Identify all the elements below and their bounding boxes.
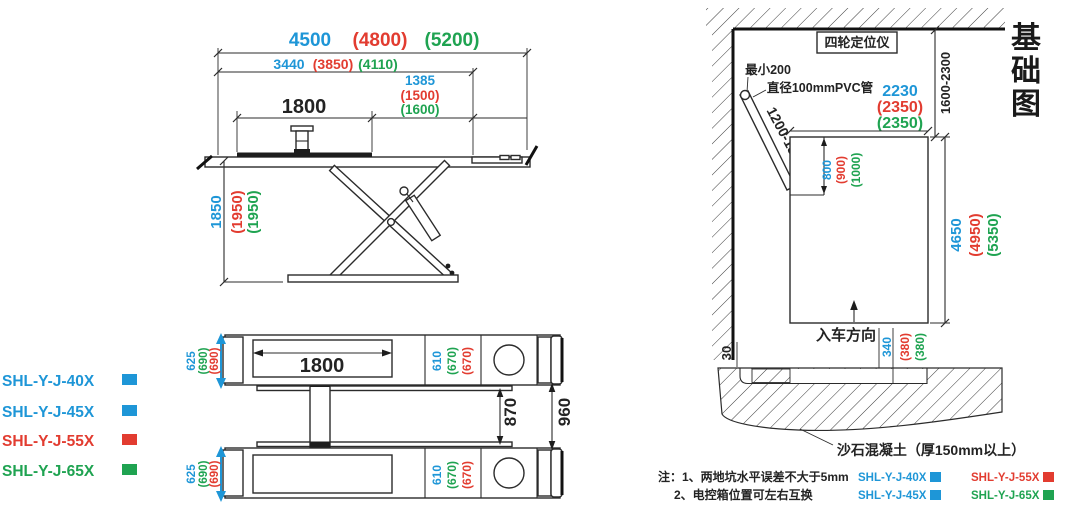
- dim-pit-depth-65x: (380): [913, 333, 927, 361]
- legend2-swatch-55x: [1043, 472, 1054, 482]
- legend-swatch-65x: [122, 464, 137, 475]
- legend-model-45x: SHL-Y-J-45X: [2, 404, 95, 421]
- dim-lift-height-65x: (1950): [245, 190, 262, 233]
- legend2-swatch-45x: [930, 490, 941, 500]
- dim-pit-width-65x: (2350): [877, 115, 923, 132]
- dim-edge-gap: 30: [719, 346, 734, 360]
- dim-wall-to-pit: 1600-2300: [938, 52, 953, 114]
- legend-swatch-40x: [122, 374, 137, 385]
- foundation-view: 四轮定位仪 最小200 1200-1800 直径100mmPVC管 2230 (…: [658, 8, 1054, 502]
- dim-pit-width-40x: 2230: [882, 83, 918, 100]
- pipe-label: 直径100mmPVC管: [767, 80, 873, 95]
- dim-pit-depth-55x: (380): [898, 333, 912, 361]
- dim-frame-length-65x: (4110): [358, 56, 398, 72]
- dim-rear-length-55x: (1500): [400, 88, 439, 103]
- legend2-model-45x: SHL-Y-J-45X: [858, 490, 927, 502]
- legend2-swatch-40x: [930, 472, 941, 482]
- model-legend-left: SHL-Y-J-40X SHL-Y-J-45X SHL-Y-J-55X SHL-…: [2, 373, 137, 480]
- dim-total-length-55x: (4800): [353, 30, 408, 51]
- entry-direction-label: 入车方向: [816, 326, 876, 344]
- dim-tread-width-55x-bottom: (670): [460, 461, 474, 489]
- dim-lift-height-55x: (1950): [229, 190, 246, 233]
- dim-total-length-65x: (5200): [425, 30, 480, 51]
- min-clearance-label: 最小200: [745, 62, 791, 77]
- note-1: 注：1、两地坑水平误差不大于5mm: [658, 469, 849, 484]
- dim-lift-height-40x: 1850: [208, 195, 225, 228]
- legend2-model-55x: SHL-Y-J-55X: [971, 472, 1040, 484]
- lift-foundation-drawing: 4500 (4800) (5200) 3440 (3850) (4110) 13…: [0, 0, 1065, 519]
- concrete-label: 沙石混凝土（厚150mm以上）: [837, 442, 1025, 458]
- dim-platform-width-55x-top: (690): [209, 347, 221, 374]
- dim-gap-outer: 960: [555, 398, 574, 426]
- model-legend-right: SHL-Y-J-40X SHL-Y-J-55X SHL-Y-J-45X SHL-…: [858, 472, 1054, 502]
- drawing-title: 基础图: [1008, 22, 1044, 121]
- dim-total-length-40x: 4500: [289, 30, 331, 51]
- dim-gap-inner: 870: [501, 398, 520, 426]
- dim-tread-width-40x-bottom: 610: [430, 465, 444, 485]
- dim-pit-length-65x: (5350): [985, 213, 1002, 256]
- dim-tread-width-65x-bottom: (670): [445, 461, 459, 489]
- plan-view: 1800 625 (690) (690) 625 (690) (690): [186, 333, 574, 502]
- legend2-model-65x: SHL-Y-J-65X: [971, 490, 1040, 502]
- side-view: 4500 (4800) (5200) 3440 (3850) (4110) 13…: [197, 30, 537, 286]
- dim-pit-length-55x: (4950): [967, 213, 984, 256]
- dim-pit-depth-40x: 340: [880, 337, 894, 357]
- technical-drawing-canvas: 4500 (4800) (5200) 3440 (3850) (4110) 13…: [0, 0, 1065, 519]
- dim-recess-40x: 800: [820, 160, 834, 180]
- dim-platform-width-40x-top: 625: [186, 351, 198, 371]
- legend-swatch-55x: [122, 434, 137, 445]
- aligner-label: 四轮定位仪: [824, 35, 890, 50]
- dim-pit-length-40x: 4650: [948, 218, 965, 251]
- dim-rear-length-40x: 1385: [405, 73, 436, 88]
- legend-model-65x: SHL-Y-J-65X: [2, 463, 95, 480]
- legend2-swatch-65x: [1043, 490, 1054, 500]
- dim-pit-width-55x: (2350): [877, 99, 923, 116]
- ground-cross-section: [718, 368, 1002, 430]
- dim-recess-55x: (900): [834, 156, 848, 184]
- dim-frame-length-40x: 3440: [273, 56, 304, 72]
- dim-rear-length-65x: (1600): [400, 102, 439, 117]
- dim-tread-length: 1800: [282, 96, 327, 118]
- dim-tread-width-55x-top: (670): [460, 347, 474, 375]
- dim-platform-width-40x-bottom: 625: [186, 464, 198, 484]
- dim-plan-tread-length: 1800: [300, 355, 345, 377]
- dim-recess-65x: (1000): [849, 153, 863, 188]
- legend-model-40x: SHL-Y-J-40X: [2, 373, 95, 390]
- legend2-model-40x: SHL-Y-J-40X: [858, 472, 927, 484]
- dim-tread-width-65x-top: (670): [445, 347, 459, 375]
- wall-hatch-left: [712, 29, 733, 360]
- legend-model-55x: SHL-Y-J-55X: [2, 433, 95, 450]
- dim-tread-width-40x-top: 610: [430, 351, 444, 371]
- wall-hatch-top: [706, 8, 1005, 29]
- dim-platform-width-55x-bottom: (690): [209, 460, 221, 487]
- legend-swatch-45x: [122, 405, 137, 416]
- scissor-mechanism: [288, 161, 458, 283]
- note-2: 2、电控箱位置可左右互换: [674, 487, 814, 502]
- dim-frame-length-55x: (3850): [313, 56, 353, 72]
